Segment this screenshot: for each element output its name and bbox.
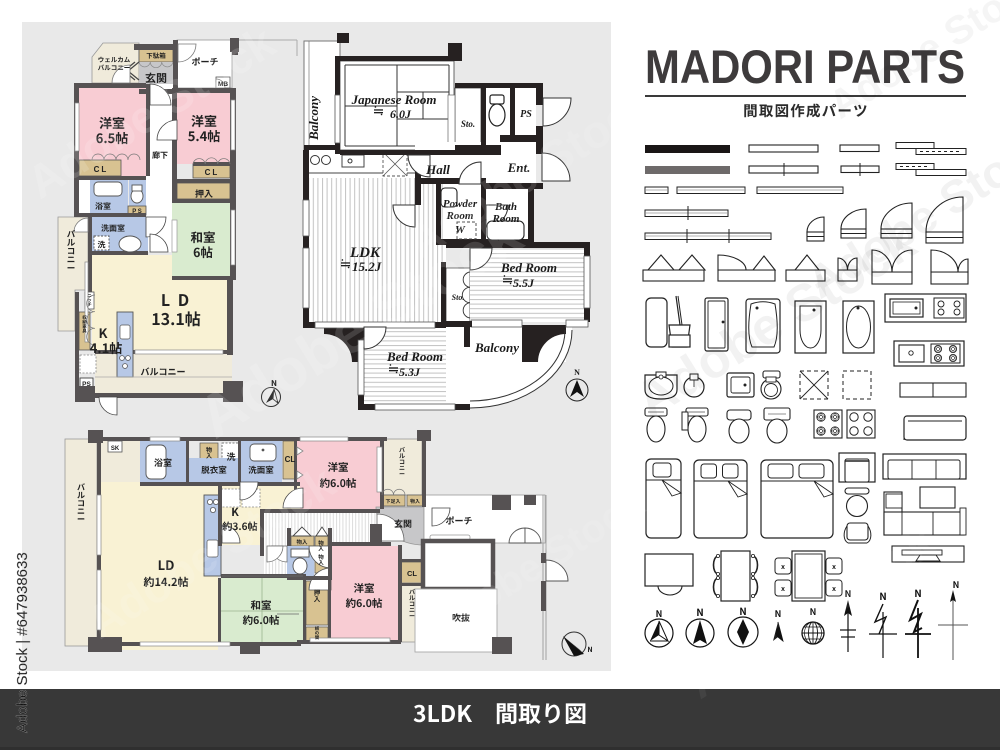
svg-text:CL: CL [285,455,296,464]
svg-text:Sto.: Sto. [461,119,475,129]
svg-text:Bed Room: Bed Room [386,349,443,364]
svg-text:Japanese Room: Japanese Room [351,92,437,107]
svg-text:15.2J: 15.2J [352,259,382,274]
svg-text:Balcony: Balcony [306,96,321,141]
svg-text:6.0J: 6.0J [390,107,412,121]
svg-text:Adobe Stock | #647938633: Adobe Stock | #647938633 [14,552,31,733]
svg-text:5.5J: 5.5J [513,276,535,290]
svg-text:PS: PS [520,109,532,120]
svg-text:Hall: Hall [425,162,450,177]
svg-text:Balcony: Balcony [474,340,519,355]
svg-text:SK: SK [111,446,120,452]
svg-text:PS: PS [82,381,91,388]
svg-text:P S: P S [132,209,142,215]
svg-text:CL: CL [205,168,220,177]
svg-text:CL: CL [407,569,417,578]
svg-text:5.3J: 5.3J [399,365,421,379]
svg-text:N: N [574,368,580,377]
